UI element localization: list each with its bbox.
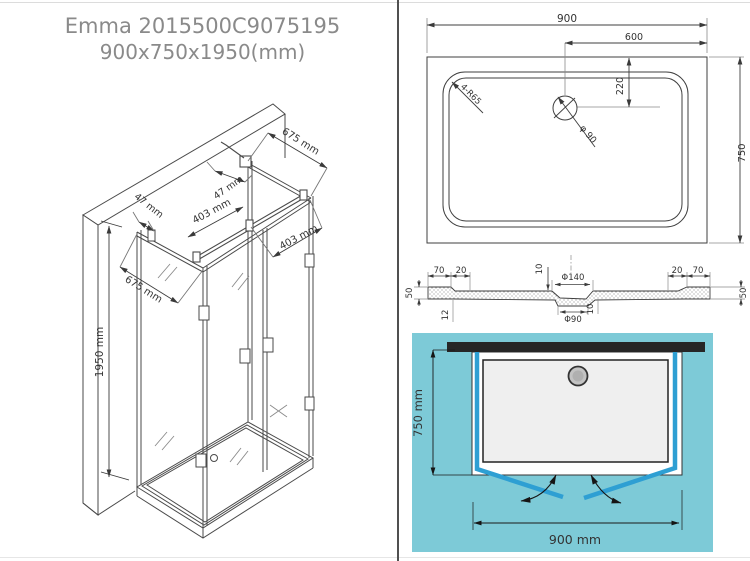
section-right-height-label: 50 (739, 288, 749, 299)
section-recess-top-diameter-label: Φ140 (562, 273, 585, 283)
shower-tray-base (137, 422, 313, 538)
drain-cap (569, 367, 588, 386)
product-code: Emma 2015500C9075195 (40, 14, 365, 40)
section-left-lip-label: 70 (434, 266, 445, 276)
isometric-drawing: 1950 mm 675 mm 675 mm 403 mm 403 mm 47 m… (0, 80, 400, 561)
tray-plan-view: 900 600 220 750 4-R65 φ 90 (405, 5, 750, 255)
section-right-step-label: 20 (672, 266, 683, 276)
product-size: 900x750x1950(mm) (40, 40, 365, 64)
wall-bar (447, 342, 705, 352)
iso-depth-top-label: 675 mm (280, 126, 321, 157)
iso-gap-top-label: 47 mm (212, 174, 246, 202)
plan-width-label: 900 (557, 13, 577, 25)
corner-radius-label: 4-R65 (458, 82, 483, 107)
section-recess-top-label: 10 (535, 264, 545, 275)
iso-height-label: 1950 mm (94, 327, 106, 378)
section-left-thickness-label: 12 (441, 310, 451, 321)
section-left-height-label: 50 (405, 288, 415, 299)
install-depth-label: 750 mm (411, 389, 425, 437)
section-right-lip-label: 70 (693, 266, 704, 276)
installation-plan-view: 750 mm 900 mm (405, 330, 750, 561)
back-wall-panel (83, 104, 285, 515)
plan-depth-label: 750 (737, 143, 748, 162)
drain-diameter-label: φ 90 (577, 124, 598, 146)
iso-door-right-label: 403 mm (278, 223, 320, 252)
iso-gap-left-label: 47 mm (132, 191, 165, 220)
section-left-step-label: 20 (456, 266, 467, 276)
iso-depth-bottom-label: 675 mm (123, 274, 164, 305)
section-recess-bottom-diameter-label: Φ90 (564, 315, 582, 325)
iso-door-left-label: 403 mm (191, 197, 233, 226)
tray-section-view: 70 20 20 70 50 50 12 10 10 Φ140 Φ90 (405, 253, 750, 331)
plan-drain-depth-label: 220 (615, 77, 626, 95)
plan-drain-offset-label: 600 (625, 32, 643, 43)
top-border-line (0, 2, 750, 3)
section-recess-bottom-label: 10 (586, 304, 596, 315)
product-title: Emma 2015500C9075195 900x750x1950(mm) (40, 14, 365, 64)
install-width-label: 900 mm (549, 532, 601, 547)
